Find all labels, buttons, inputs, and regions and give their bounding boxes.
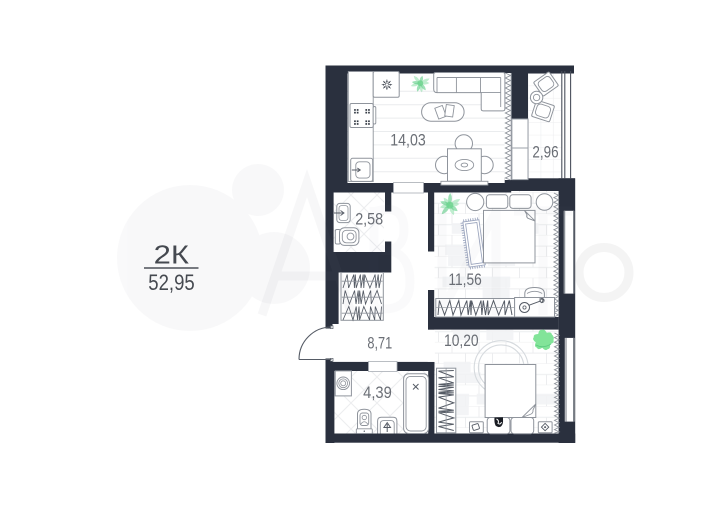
svg-text:14,03: 14,03 xyxy=(390,132,425,150)
svg-text:8,71: 8,71 xyxy=(367,335,392,353)
svg-text:2,96: 2,96 xyxy=(532,144,558,162)
svg-text:10,20: 10,20 xyxy=(444,332,479,350)
svg-text:4,39: 4,39 xyxy=(363,384,392,402)
